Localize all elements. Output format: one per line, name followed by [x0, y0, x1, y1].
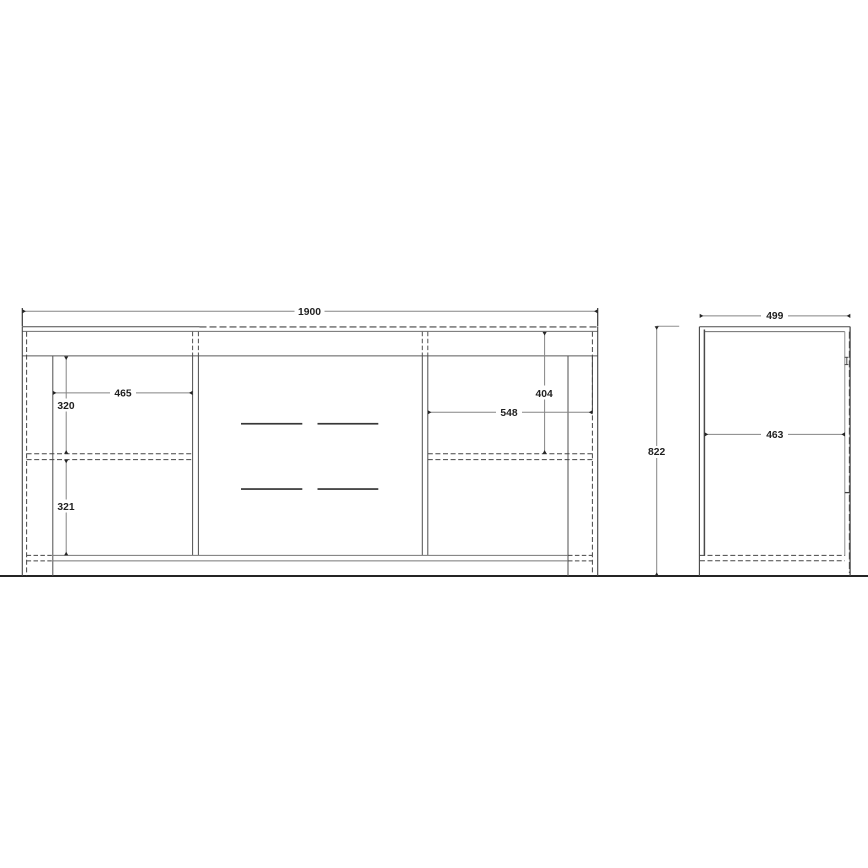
svg-text:465: 465 [114, 389, 131, 400]
svg-text:499: 499 [766, 311, 783, 322]
svg-text:320: 320 [57, 401, 74, 412]
svg-text:404: 404 [536, 389, 553, 400]
svg-text:548: 548 [500, 408, 517, 419]
svg-text:463: 463 [766, 430, 783, 441]
svg-text:822: 822 [648, 447, 665, 458]
svg-text:321: 321 [57, 502, 74, 513]
svg-text:1900: 1900 [298, 307, 321, 318]
